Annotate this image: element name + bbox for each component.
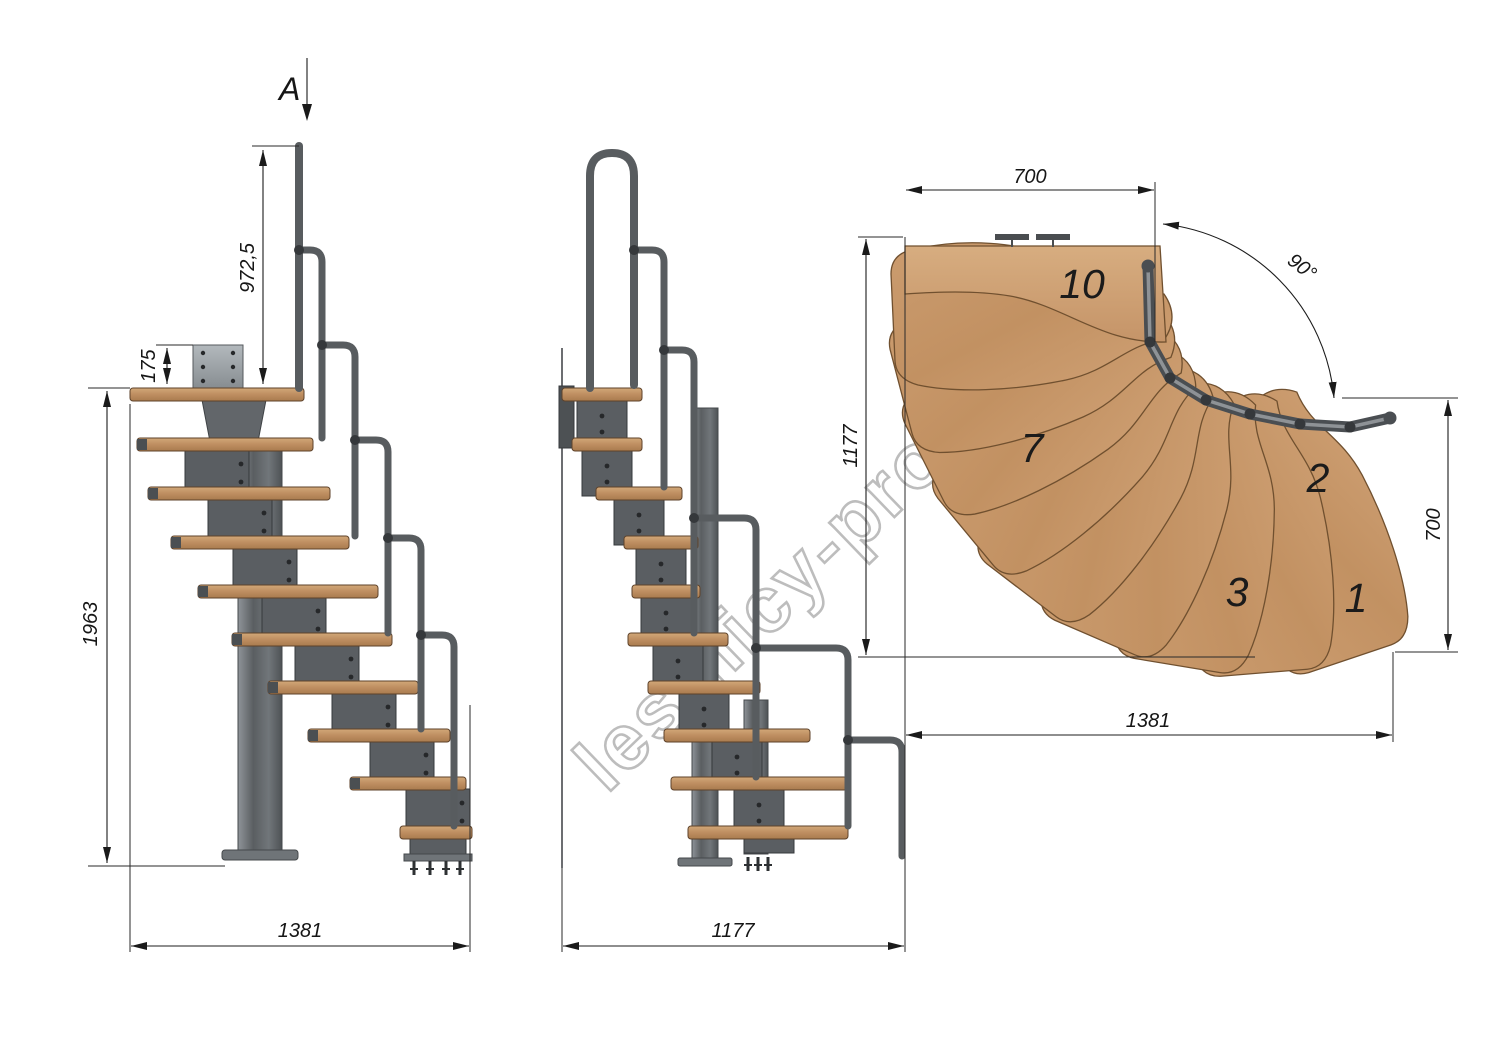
staircase-drawing-canvas: A 972,5 175 1963 1381: [0, 0, 1500, 1061]
dim-plate-offset: 175: [138, 348, 160, 382]
wall-mount-plate: [193, 345, 243, 388]
dim-rail-height: 972,5: [237, 242, 259, 293]
tread-number-1: 1: [1345, 575, 1368, 621]
dim-landing-width: 700: [1013, 166, 1046, 188]
dim-entry-depth: 700: [1423, 508, 1445, 541]
tread-number-10: 10: [1059, 261, 1105, 307]
anchor-base-flange: [404, 854, 472, 861]
front-view-dimensions: 1177: [562, 868, 904, 952]
technical-drawing-page: lestnicy-prosto.ru: [0, 0, 1500, 1061]
column-base-flange: [678, 858, 732, 866]
plan-view: 700 90° 1177 700 1381 10 7 2 3: [840, 166, 1458, 952]
dim-plan-side-depth: 1177: [840, 424, 862, 468]
front-view: 1177: [559, 153, 904, 952]
side-view-structure: [185, 345, 472, 875]
dim-side-length: 1381: [278, 920, 323, 942]
dim-turn-angle: 90°: [1283, 249, 1320, 285]
tread-number-2: 2: [1306, 455, 1330, 501]
section-arrow-head: [302, 104, 312, 121]
stair-modules: [185, 450, 470, 854]
tread-number-7: 7: [1021, 425, 1046, 471]
anchor-bolts: [410, 861, 464, 875]
section-label: A: [277, 71, 300, 107]
dim-front-width: 1177: [711, 920, 755, 942]
dim-total-height: 1963: [80, 602, 102, 647]
dim-plan-length: 1381: [1126, 710, 1171, 732]
side-view: A 972,5 175 1963 1381: [80, 58, 472, 952]
column-base-flange: [222, 850, 298, 860]
anchor-bolts: [744, 857, 772, 871]
handrail-loop: [590, 153, 634, 388]
tread-number-3: 3: [1226, 569, 1249, 615]
